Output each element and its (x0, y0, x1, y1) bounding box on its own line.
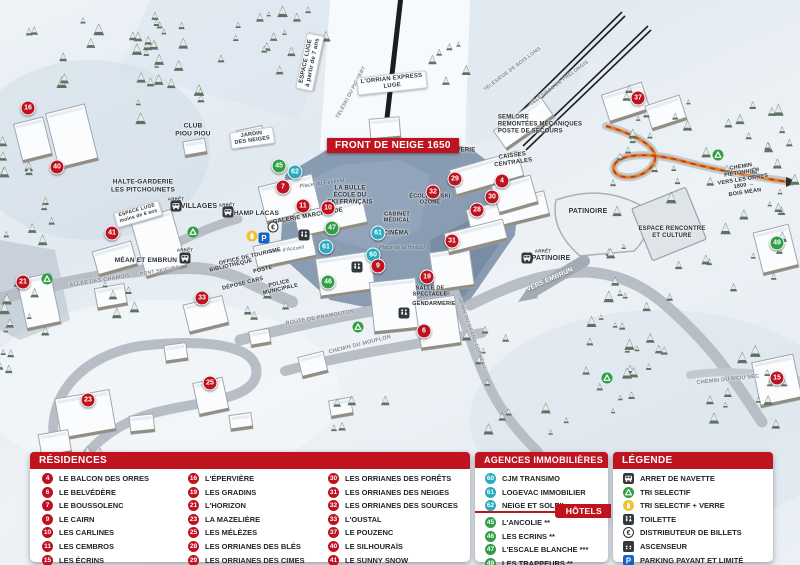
recycle-icon (353, 320, 364, 337)
legend-item-number: 60 (485, 473, 496, 484)
legend-item-label: TOILETTE (640, 515, 676, 524)
legend-item-number: 4 (42, 473, 53, 484)
map-label: PATINOIRE (569, 208, 608, 216)
map-label: ARRÊT (535, 248, 552, 253)
legend-item-label: LES ORRIANES DES CIMES (205, 556, 305, 565)
bus-icon (223, 205, 234, 222)
legend-item-label: LES ORRIANES DES FORÊTS (345, 474, 451, 483)
legend-item: 4LE BALCON DES ORRES (42, 473, 149, 484)
legend-item-label: L'ÉPERVIÈRE (205, 474, 254, 483)
map-label: Place de la Hodoul (379, 246, 425, 252)
legend-item: 16L'ÉPERVIÈRE (188, 473, 305, 484)
recycle-icon (623, 487, 634, 498)
legend-item: 15LES ÉCRINS (42, 555, 149, 565)
legend-item-label: TRI SELECTIF (640, 488, 690, 497)
legend-item: 28LES ORRIANES DES BLÉS (188, 541, 305, 552)
legend-item-label: LE BALCON DES ORRES (59, 474, 149, 483)
legend-item-number: 45 (485, 517, 496, 528)
map-bus-icon (180, 253, 191, 264)
map-label: CLUB PIOU PIOU (175, 122, 210, 137)
legende-title: LÉGENDE (613, 452, 773, 469)
map-label: CHAMP LACAS (229, 210, 279, 218)
legend-item: TOILETTE (623, 514, 743, 525)
map-wc-icon (299, 230, 310, 241)
legend-item: €DISTRIBUTEUR DE BILLETS (623, 527, 743, 538)
map-label: MÉAN ET EMBRUN (115, 257, 177, 265)
legend-item-label: LE SUNNY SNOW (345, 556, 408, 565)
map-yellow-icon (247, 231, 258, 242)
legend-item: 60CJM TRANSIMO (485, 473, 586, 484)
map-marker-11: 11 (296, 199, 311, 214)
legend-item: 46LES ECRINS ** (485, 531, 588, 542)
legend-item: 32LES ORRIANES DES SOURCES (328, 500, 458, 511)
legend-item-label: L'OUSTAL (345, 515, 382, 524)
map-label: HALTE-GARDERIE LES PITCHOUNETS (111, 178, 175, 193)
legend-item-number: 19 (188, 487, 199, 498)
legend-item-label: LES ORRIANES DES SOURCES (345, 501, 458, 510)
legend-item-number: 40 (328, 541, 339, 552)
svg-text:€: € (627, 530, 631, 537)
legend-item: 23LA MAZELIÈRE (188, 514, 305, 525)
map-marker-25: 25 (203, 376, 218, 391)
map-marker-23: 23 (81, 393, 96, 408)
map-recycle-icon (188, 227, 199, 238)
bus-icon (171, 199, 182, 216)
legend-item-label: LES GRADINS (205, 488, 256, 497)
elevator-icon (623, 541, 634, 552)
legend-item: 29LES ORRIANES DES CIMES (188, 555, 305, 565)
wc-icon (399, 306, 410, 323)
legend-item-label: PARKING PAYANT ET LIMITÉ (640, 556, 743, 565)
legend-item-label: CJM TRANSIMO (502, 474, 560, 483)
legend-item-label: LE BELVÉDÈRE (59, 488, 116, 497)
legend-item: 10LES CARLINES (42, 527, 149, 538)
legend-item-number: 49 (485, 558, 496, 565)
parking-icon: P (623, 555, 634, 565)
map-recycle-icon (602, 373, 613, 384)
legend-item: 61LOGEVAC IMMOBILIER (485, 487, 586, 498)
svg-text:P: P (261, 234, 266, 243)
legend-item-label: LE SILHOURAÏS (345, 542, 403, 551)
map-marker-21: 21 (16, 275, 31, 290)
legend-item-number: 15 (42, 555, 53, 565)
map-bus-icon (171, 201, 182, 212)
map-marker-30: 30 (485, 190, 500, 205)
map-label: PATINOIRE (532, 255, 571, 263)
map-label: GENDARMERIE (412, 301, 455, 307)
legend-item-label: L'ESCALE BLANCHE *** (502, 545, 588, 554)
map-euro-icon: € (268, 222, 279, 233)
hotels-title: HÔTELS (555, 504, 611, 518)
svg-text:P: P (626, 556, 631, 565)
legend-item: 41LE SUNNY SNOW (328, 555, 458, 565)
legend-item-number: 7 (42, 500, 53, 511)
legend-item-label: TRI SELECTIF + VERRE (640, 501, 725, 510)
recycle-icon (602, 371, 613, 388)
wc-icon (623, 514, 634, 525)
recycle-icon (188, 225, 199, 242)
map-bus-icon (223, 207, 234, 218)
map-wc-icon (399, 308, 410, 319)
legend-item-label: LA MAZELIÈRE (205, 515, 260, 524)
map-marker-19: 19 (420, 270, 435, 285)
legend-item-label: L'HORIZON (205, 501, 246, 510)
legend-item: 47L'ESCALE BLANCHE *** (485, 544, 588, 555)
map-marker-9: 9 (371, 259, 386, 274)
map-marker-49: 49 (770, 236, 785, 251)
legend-item: 25LES MÉLÈZES (188, 527, 305, 538)
legend-item: 11LES CEMBROS (42, 541, 149, 552)
map-marker-28: 28 (470, 203, 485, 218)
wc-icon (352, 260, 363, 277)
wc-icon (299, 228, 310, 245)
map-marker-7: 7 (276, 180, 291, 195)
yellow-icon (247, 229, 258, 246)
legend-item-number: 16 (188, 473, 199, 484)
map-recycle-icon (713, 150, 724, 161)
map-marker-61: 61 (371, 226, 386, 241)
map-marker-37: 37 (631, 91, 646, 106)
legend-item-label: LES ORRIANES DES BLÉS (205, 542, 301, 551)
recycle-icon (713, 148, 724, 165)
bus-icon (180, 251, 191, 268)
legend-item: 45L'ANCOLIE ** (485, 517, 588, 528)
legend-panel-residences: RÉSIDENCES 4LE BALCON DES ORRES6LE BELVÉ… (30, 452, 470, 562)
legend-item-label: LES MÉLÈZES (205, 528, 257, 537)
map-recycle-icon (353, 322, 364, 333)
yellow-icon (623, 500, 634, 511)
bus-icon (623, 473, 634, 484)
legend-item-label: DISTRIBUTEUR DE BILLETS (640, 528, 742, 537)
map-marker-31: 31 (445, 234, 460, 249)
legend-item-label: LES CEMBROS (59, 542, 114, 551)
legend-item-number: 6 (42, 487, 53, 498)
recycle-icon (42, 272, 53, 289)
legend-panel-legende: LÉGENDE ARRET DE NAVETTETRI SELECTIFTRI … (613, 452, 773, 562)
legend-item-number: 33 (328, 514, 339, 525)
resort-map: P€ ESPACE LUGE à partir de 7 ansTÉLÉSKI … (0, 0, 800, 565)
legend-item-number: 28 (188, 541, 199, 552)
legend-item-label: L'ANCOLIE ** (502, 518, 550, 527)
legend-item-number: 29 (188, 555, 199, 565)
legend-item: 31LES ORRIANES DES NEIGES (328, 487, 458, 498)
map-label: SEMLORE REMONTÉES MÉCANIQUES POSTE DE SE… (498, 114, 582, 135)
legend-item-label: LES ECRINS ** (502, 532, 555, 541)
map-marker-16: 16 (21, 101, 36, 116)
map-marker-6: 6 (417, 324, 432, 339)
legend-item: 6LE BELVÉDÈRE (42, 487, 149, 498)
legend-item-number: 11 (42, 541, 53, 552)
legend-item: 9LE CAIRN (42, 514, 149, 525)
legend-item-number: 31 (328, 487, 339, 498)
legend-item-number: 25 (188, 527, 199, 538)
map-label: CINÉMA (384, 230, 409, 237)
legend-item-number: 46 (485, 531, 496, 542)
legend-item: ASCENSEUR (623, 541, 743, 552)
map-marker-32: 32 (426, 185, 441, 200)
legend-item-number: 30 (328, 473, 339, 484)
legend-item-label: LE POUZENC (345, 528, 393, 537)
map-marker-45: 45 (272, 159, 287, 174)
legend-item-number: 23 (188, 514, 199, 525)
legend-item-number: 10 (42, 527, 53, 538)
legend-item-label: LES ÉCRINS (59, 556, 104, 565)
legend-item-number: 47 (485, 544, 496, 555)
legend-item: PPARKING PAYANT ET LIMITÉ (623, 555, 743, 565)
legend-item-label: LES TRAPPEURS ** (502, 559, 573, 565)
map-label: CABINET MÉDICAL (384, 212, 410, 225)
map-label: VILLAGES (181, 203, 218, 211)
map-marker-41: 41 (105, 226, 120, 241)
map-recycle-icon (42, 274, 53, 285)
legend-item-number: 62 (485, 500, 496, 511)
legend-item: 21L'HORIZON (188, 500, 305, 511)
map-marker-62: 62 (288, 165, 303, 180)
legend-item-label: ASCENSEUR (640, 542, 687, 551)
legend-item: TRI SELECTIF + VERRE (623, 500, 743, 511)
map-marker-46: 46 (321, 275, 336, 290)
legend-item-label: LES CARLINES (59, 528, 114, 537)
map-marker-10: 10 (321, 201, 336, 216)
legend-item: ARRET DE NAVETTE (623, 473, 743, 484)
agences-title: AGENCES IMMOBILIÈRES (475, 452, 608, 468)
legend-item-label: LE BOUSSOLENC (59, 501, 124, 510)
map-marker-61: 61 (319, 240, 334, 255)
legend-item-number: 41 (328, 555, 339, 565)
map-label: ESPACE RENCONTRE ET CULTURE (638, 226, 705, 240)
map-marker-47: 47 (325, 221, 340, 236)
map-label: SALLE DE SPECTACLE (413, 286, 448, 299)
legend-item: 7LE BOUSSOLENC (42, 500, 149, 511)
legend-item-number: 32 (328, 500, 339, 511)
map-marker-4: 4 (495, 174, 510, 189)
residences-title: RÉSIDENCES (30, 452, 470, 469)
map-marker-33: 33 (195, 291, 210, 306)
map-marker-40: 40 (50, 160, 65, 175)
map-bus-icon (522, 253, 533, 264)
legend-item: 30LES ORRIANES DES FORÊTS (328, 473, 458, 484)
front-de-neige-banner: FRONT DE NEIGE 1650 (327, 138, 459, 153)
legend-item: 33L'OUSTAL (328, 514, 458, 525)
legend-item-number: 37 (328, 527, 339, 538)
legend-item-label: LOGEVAC IMMOBILIER (502, 488, 586, 497)
legend-item-number: 9 (42, 514, 53, 525)
legend-item-label: LE CAIRN (59, 515, 94, 524)
legend-panel-agences: AGENCES IMMOBILIÈRES 60CJM TRANSIMO61LOG… (475, 452, 608, 562)
map-marker-29: 29 (448, 172, 463, 187)
legend-item-number: 21 (188, 500, 199, 511)
legend-item-label: LES ORRIANES DES NEIGES (345, 488, 449, 497)
legend-item: TRI SELECTIF (623, 487, 743, 498)
legend-item-label: ARRET DE NAVETTE (640, 474, 715, 483)
map-marker-15: 15 (770, 371, 785, 386)
legend-item: 19LES GRADINS (188, 487, 305, 498)
euro-icon: € (623, 527, 634, 538)
legend-item-number: 61 (485, 487, 496, 498)
legend-item: 37LE POUZENC (328, 527, 458, 538)
legend-item: 40LE SILHOURAÏS (328, 541, 458, 552)
bus-icon (522, 251, 533, 268)
legend-item: 49LES TRAPPEURS ** (485, 558, 588, 565)
map-wc-icon (352, 262, 363, 273)
svg-text:€: € (271, 224, 275, 231)
euro-icon: € (268, 220, 279, 237)
